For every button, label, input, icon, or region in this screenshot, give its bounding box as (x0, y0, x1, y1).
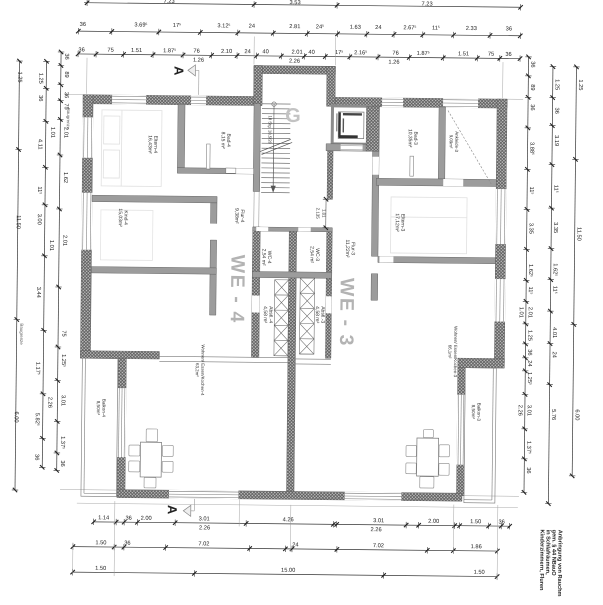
svg-text:40: 40 (262, 49, 268, 55)
svg-text:17,12m²: 17,12m² (394, 213, 400, 232)
svg-text:1.51: 1.51 (458, 51, 469, 57)
svg-text:1.25: 1.25 (16, 71, 22, 82)
svg-text:2.33: 2.33 (466, 26, 477, 32)
svg-text:76: 76 (392, 51, 398, 57)
svg-text:1.26: 1.26 (193, 58, 204, 64)
svg-text:36: 36 (529, 104, 535, 110)
svg-text:2.26: 2.26 (517, 405, 523, 416)
svg-text:4.26: 4.26 (283, 517, 294, 523)
svg-text:36: 36 (63, 92, 69, 98)
svg-text:5.76: 5.76 (550, 409, 556, 420)
svg-text:1.51: 1.51 (131, 48, 142, 54)
svg-text:1.01: 1.01 (518, 307, 524, 318)
svg-text:11.50: 11.50 (15, 215, 21, 229)
svg-text:89: 89 (63, 71, 69, 77)
svg-text:15,03m²: 15,03m² (117, 208, 123, 227)
svg-text:G: G (285, 105, 301, 127)
svg-text:2.26: 2.26 (46, 397, 52, 408)
svg-text:40: 40 (308, 50, 314, 56)
svg-text:16,43m²: 16,43m² (147, 135, 153, 154)
svg-text:24: 24 (526, 360, 532, 366)
svg-text:3.35: 3.35 (552, 222, 558, 233)
svg-text:18 Stg. 18,5/28: 18 Stg. 18,5/28 (267, 115, 272, 144)
svg-text:2,54 m²: 2,54 m² (308, 246, 314, 263)
svg-text:A: A (165, 505, 180, 515)
svg-text:15.00: 15.00 (281, 568, 295, 574)
svg-text:36: 36 (529, 61, 535, 67)
svg-text:24: 24 (375, 25, 381, 31)
svg-text:Wohnen/ Essen/Kochen-3: Wohnen/ Essen/Kochen-3 (453, 326, 459, 378)
svg-text:24: 24 (249, 24, 255, 30)
svg-text:36: 36 (78, 47, 84, 53)
svg-text:36: 36 (498, 519, 504, 525)
svg-text:36: 36 (505, 52, 511, 58)
svg-text:Kinderzimmern, Fluren: Kinderzimmern, Fluren (538, 530, 545, 592)
svg-text:76: 76 (193, 49, 199, 55)
svg-text:6.00: 6.00 (574, 409, 580, 420)
svg-text:9,09m²: 9,09m² (449, 135, 454, 149)
svg-text:1.25: 1.25 (577, 79, 583, 90)
svg-text:1.50: 1.50 (470, 519, 481, 525)
svg-text:2.81: 2.81 (289, 24, 300, 30)
svg-text:4,58 m²: 4,58 m² (314, 306, 320, 323)
svg-text:36: 36 (126, 516, 132, 522)
svg-text:9,38m²: 9,38m² (233, 208, 239, 224)
svg-text:1.25: 1.25 (37, 73, 43, 84)
svg-text:WE - 4: WE - 4 (226, 255, 249, 324)
svg-text:11.50: 11.50 (575, 227, 581, 241)
svg-text:36: 36 (525, 467, 531, 473)
svg-text:6.00: 6.00 (13, 411, 19, 422)
svg-text:8,15 m²: 8,15 m² (220, 132, 226, 149)
svg-text:66,1m²: 66,1m² (447, 345, 452, 359)
svg-text:1.50: 1.50 (95, 566, 106, 572)
svg-text:1.01: 1.01 (321, 209, 326, 218)
svg-text:1.62: 1.62 (62, 172, 68, 183)
svg-text:1.25: 1.25 (526, 330, 532, 341)
svg-text:Balkon-3: Balkon-3 (476, 403, 481, 422)
svg-text:Ankleide-3: Ankleide-3 (454, 131, 459, 152)
svg-text:WE - 3: WE - 3 (335, 278, 358, 347)
svg-text:2.26: 2.26 (289, 59, 300, 65)
svg-text:8,50m²: 8,50m² (471, 405, 476, 420)
svg-text:1.25: 1.25 (554, 79, 560, 90)
svg-text:7.02: 7.02 (373, 543, 384, 549)
svg-text:Baugrenze: Baugrenze (66, 108, 71, 130)
svg-text:4,58 m²: 4,58 m² (262, 306, 268, 323)
svg-text:1.01: 1.01 (49, 127, 55, 138)
svg-text:75: 75 (488, 52, 494, 58)
svg-text:Baugrenze: Baugrenze (19, 323, 24, 345)
svg-text:1.86: 1.86 (471, 544, 482, 550)
svg-text:11,22m²: 11,22m² (344, 239, 350, 257)
svg-text:2.26: 2.26 (371, 527, 382, 533)
svg-text:36: 36 (526, 349, 532, 355)
svg-text:2.135: 2.135 (315, 208, 320, 220)
svg-text:63,2m²: 63,2m² (195, 363, 200, 377)
svg-text:24: 24 (551, 351, 557, 357)
svg-text:2,54 m²: 2,54 m² (260, 249, 266, 266)
svg-text:3.01: 3.01 (373, 518, 384, 524)
svg-text:75: 75 (60, 330, 66, 336)
svg-text:3.44: 3.44 (35, 287, 41, 298)
svg-text:3.00: 3.00 (36, 214, 42, 225)
svg-text:1.63: 1.63 (350, 25, 361, 31)
svg-text:1.01: 1.01 (48, 240, 54, 251)
svg-text:3.01: 3.01 (60, 395, 66, 406)
svg-text:24: 24 (292, 542, 298, 548)
svg-text:2.01: 2.01 (292, 50, 303, 56)
svg-text:36: 36 (506, 26, 512, 32)
svg-text:36: 36 (37, 95, 43, 101)
svg-text:7.02: 7.02 (198, 541, 209, 547)
svg-text:36: 36 (59, 460, 65, 466)
svg-text:3.19: 3.19 (553, 135, 559, 146)
svg-text:89: 89 (529, 84, 535, 90)
svg-text:3.53: 3.53 (290, 0, 301, 6)
svg-text:Balkon-4: Balkon-4 (101, 399, 106, 418)
svg-text:3.35: 3.35 (528, 223, 534, 234)
svg-text:75: 75 (107, 48, 113, 54)
svg-text:36: 36 (80, 22, 86, 28)
svg-text:10,35m²: 10,35m² (407, 129, 413, 148)
svg-text:2.26: 2.26 (199, 525, 210, 531)
svg-text:1.50: 1.50 (95, 540, 106, 546)
svg-text:2.00: 2.00 (428, 519, 439, 525)
svg-text:4.01: 4.01 (551, 327, 557, 338)
svg-text:36: 36 (124, 541, 130, 547)
svg-text:24: 24 (244, 49, 250, 55)
svg-text:2.00: 2.00 (141, 516, 152, 522)
svg-text:1.14: 1.14 (98, 515, 109, 521)
svg-text:7.23: 7.23 (164, 0, 175, 5)
svg-text:2.10: 2.10 (221, 49, 232, 55)
svg-text:7.23: 7.23 (422, 1, 433, 7)
svg-text:36: 36 (33, 454, 39, 460)
svg-text:A: A (171, 66, 186, 76)
svg-text:36: 36 (553, 107, 559, 113)
svg-text:8,50m²: 8,50m² (96, 401, 101, 416)
svg-text:3.01: 3.01 (526, 405, 532, 416)
svg-text:36: 36 (63, 53, 69, 59)
svg-text:2.01: 2.01 (61, 235, 67, 246)
svg-text:2.01: 2.01 (527, 307, 533, 318)
svg-text:1.26: 1.26 (388, 60, 399, 66)
svg-text:1.50: 1.50 (474, 570, 485, 576)
svg-text:3.01: 3.01 (199, 516, 210, 522)
svg-text:Wohnen/ Essen/Kochen-4: Wohnen/ Essen/Kochen-4 (200, 344, 206, 396)
svg-text:4.11: 4.11 (37, 139, 43, 150)
